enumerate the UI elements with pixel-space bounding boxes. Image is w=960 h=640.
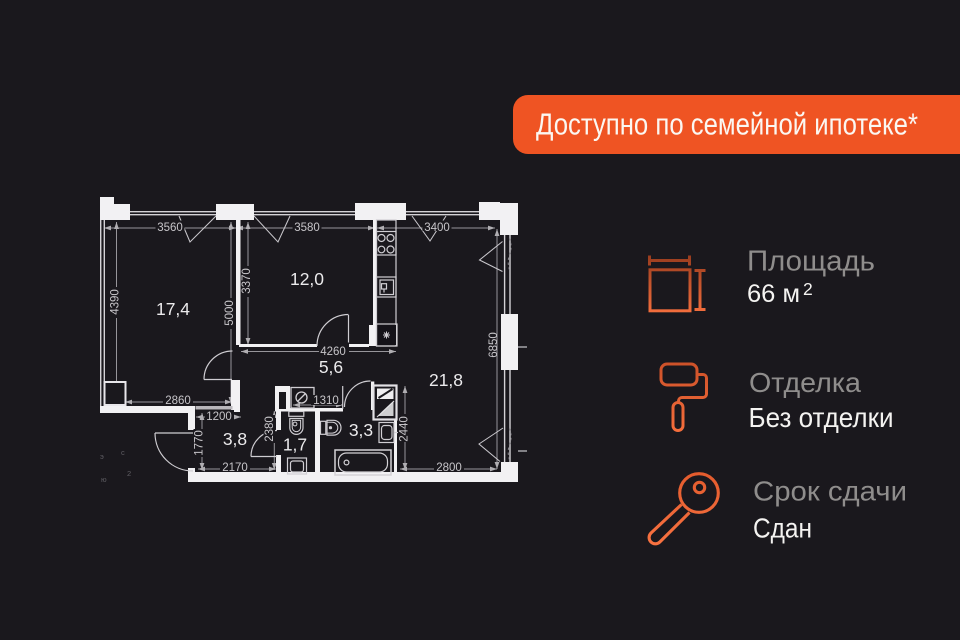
svg-text:6850: 6850 <box>488 332 500 358</box>
svg-text:1,7: 1,7 <box>283 435 307 455</box>
svg-text:1200: 1200 <box>206 411 232 423</box>
svg-text:Без отделки: Без отделки <box>749 402 894 433</box>
svg-text:Сдан: Сдан <box>753 513 812 544</box>
svg-text:2440: 2440 <box>399 416 411 442</box>
svg-text:2: 2 <box>127 469 131 478</box>
svg-text:Отделка: Отделка <box>749 367 862 398</box>
svg-text:5000: 5000 <box>224 300 236 326</box>
svg-text:3580: 3580 <box>294 222 320 234</box>
svg-text:Срок сдачи: Срок сдачи <box>753 476 907 507</box>
svg-text:Доступно по семейной ипотеке*: Доступно по семейной ипотеке* <box>536 107 918 142</box>
svg-text:3,8: 3,8 <box>223 429 247 449</box>
svg-text:2: 2 <box>803 279 813 299</box>
svg-text:5,6: 5,6 <box>319 357 343 377</box>
svg-text:с: с <box>121 448 125 457</box>
svg-text:1770: 1770 <box>194 430 206 456</box>
svg-text:ю: ю <box>101 475 107 484</box>
svg-text:2800: 2800 <box>436 462 462 474</box>
svg-text:2170: 2170 <box>222 462 248 474</box>
svg-text:3370: 3370 <box>241 268 253 294</box>
svg-text:4390: 4390 <box>110 289 122 315</box>
svg-text:2860: 2860 <box>165 395 191 407</box>
svg-text:Площадь: Площадь <box>747 246 875 278</box>
svg-text:3,3: 3,3 <box>349 420 373 440</box>
svg-text:21,8: 21,8 <box>429 370 463 390</box>
svg-text:1310: 1310 <box>313 395 339 407</box>
svg-text:3400: 3400 <box>424 222 450 234</box>
svg-text:3560: 3560 <box>157 222 183 234</box>
svg-text:2380: 2380 <box>264 416 276 442</box>
svg-text:12,0: 12,0 <box>290 269 324 289</box>
svg-text:э: э <box>100 452 104 461</box>
svg-text:17,4: 17,4 <box>156 299 190 319</box>
svg-text:66 м: 66 м <box>747 280 800 308</box>
